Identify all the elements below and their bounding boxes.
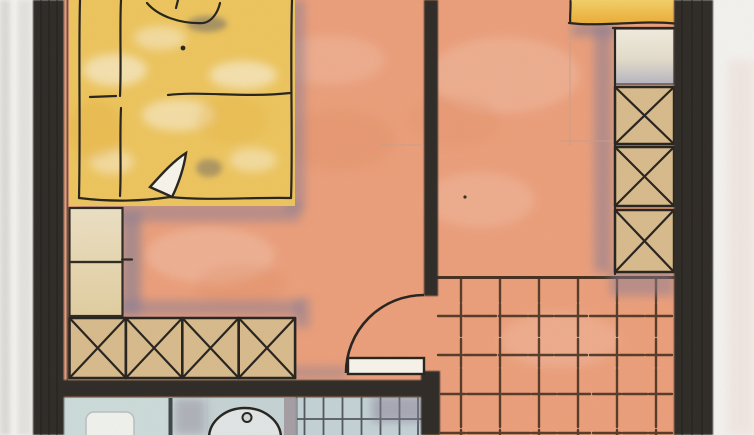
floor-plan-scan	[0, 0, 754, 435]
floor-plan-canvas	[0, 0, 754, 435]
paper-grain	[0, 0, 754, 435]
